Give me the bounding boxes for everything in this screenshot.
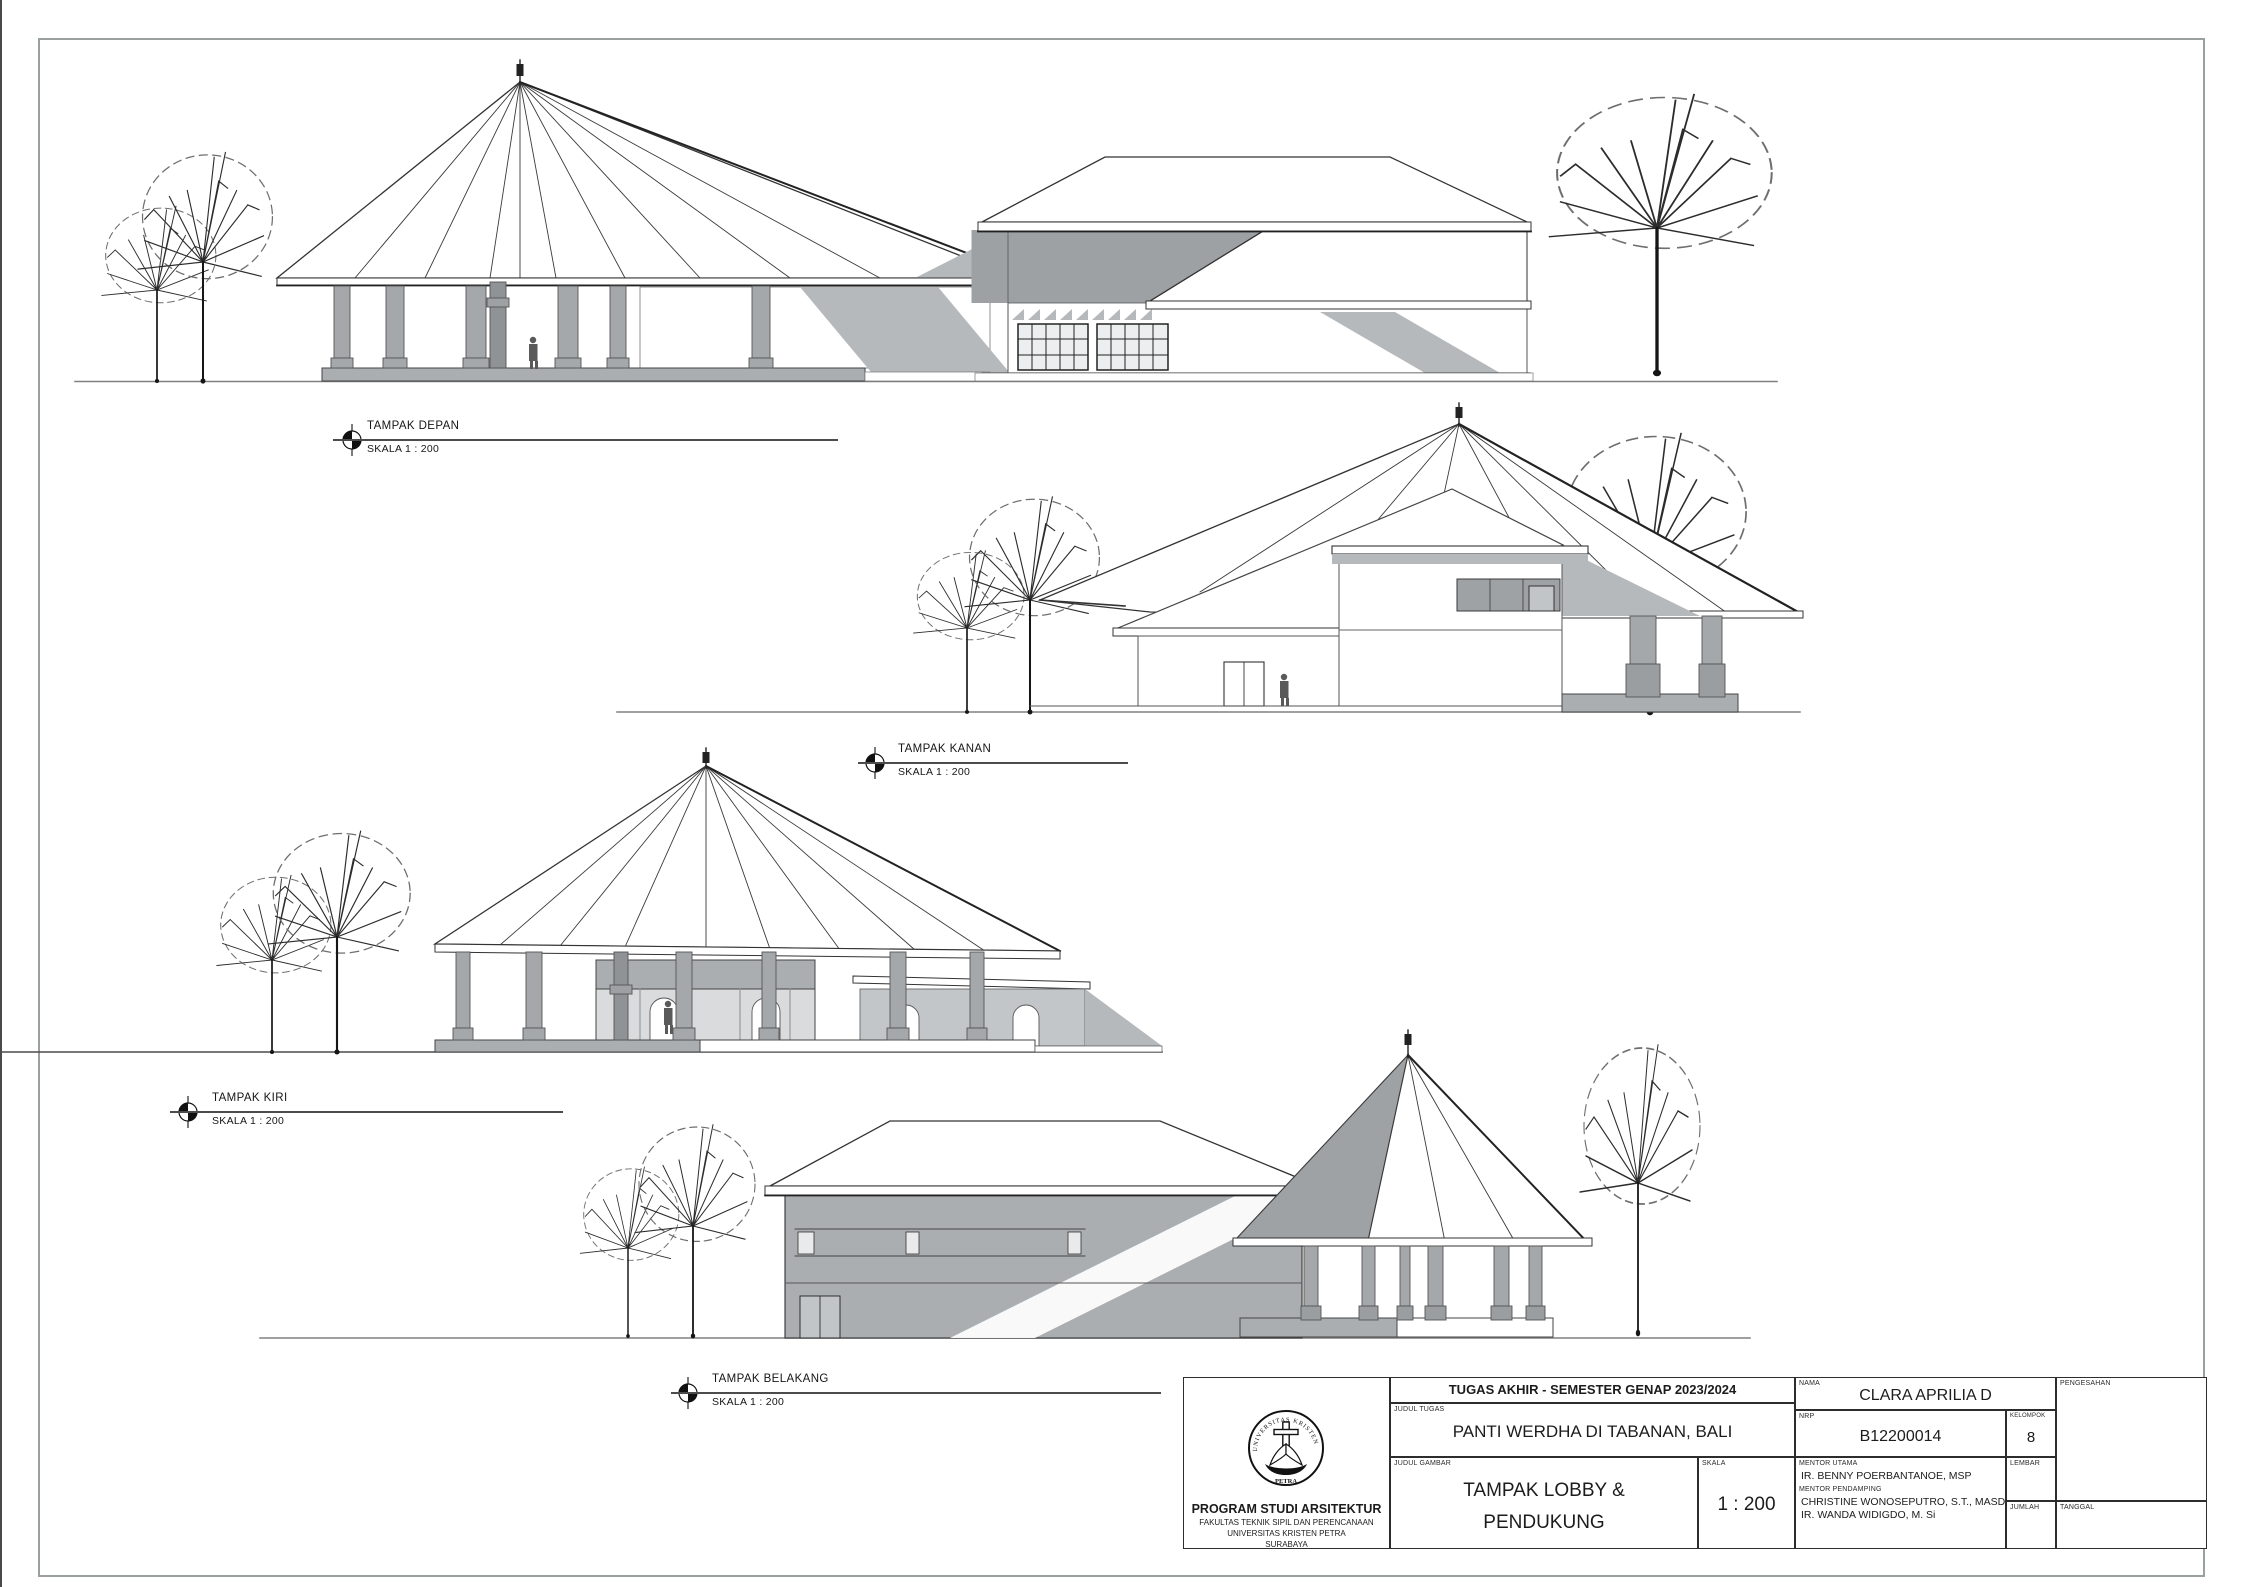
jumlah-label: JUMLAH — [2010, 1504, 2039, 1511]
skala-value: 1 : 200 — [1699, 1494, 1794, 1516]
judul-tugas-cell: JUDUL TUGAS PANTI WERDHA DI TABANAN, BAL… — [1390, 1403, 1795, 1457]
mentor-utama-label: MENTOR UTAMA — [1799, 1460, 1858, 1467]
title-block: UNIVERSITAS KRISTEN PETRA PROGRAM STUDI … — [1183, 1377, 2207, 1549]
elevation-kanan-drawing — [617, 403, 1803, 715]
logo-text-bottom: PETRA — [1275, 1478, 1297, 1485]
label-underline — [858, 762, 1128, 764]
pengesahan-label: PENGESAHAN — [2060, 1380, 2111, 1387]
lobby-pavilion-front — [277, 60, 1017, 381]
elevation-depan-drawing — [75, 60, 1777, 384]
lembar-label: LEMBAR — [2010, 1460, 2040, 1467]
nama-value: CLARA APRILIA D — [1796, 1387, 2055, 1405]
institution-city: SURABAYA — [1184, 1539, 1389, 1551]
architectural-sheet: { "page": { "type": "architectural eleva… — [0, 0, 2245, 1587]
judul-tugas-value: PANTI WERDHA DI TABANAN, BALI — [1391, 1422, 1794, 1442]
support-building-back — [765, 1121, 1320, 1338]
nama-label: NAMA — [1799, 1380, 1820, 1387]
kelompok-value: 8 — [2007, 1429, 2055, 1446]
elevation-belakang-drawing — [260, 1030, 1750, 1338]
mentor-utama-value: IR. BENNY POERBANTANOE, MSP — [1801, 1470, 1972, 1482]
tree-icon — [217, 831, 410, 1054]
elevation-kiri-drawing — [0, 748, 1162, 1055]
label-underline — [333, 439, 838, 441]
institution-name: PROGRAM STUDI ARSITEKTUR — [1184, 1502, 1389, 1516]
elevation-title: TAMPAK DEPAN — [367, 420, 459, 432]
kelompok-cell: KELOMPOK 8 — [2006, 1410, 2056, 1457]
label-underline — [170, 1111, 563, 1113]
elevation-scale: SKALA 1 : 200 — [898, 766, 970, 778]
kelompok-label: KELOMPOK — [2010, 1413, 2045, 1419]
skala-cell: SKALA 1 : 200 — [1698, 1457, 1795, 1549]
institution-cell: UNIVERSITAS KRISTEN PETRA PROGRAM STUDI … — [1183, 1377, 1390, 1549]
elevation-scale: SKALA 1 : 200 — [367, 443, 439, 455]
project-header-cell: TUGAS AKHIR - SEMESTER GENAP 2023/2024 — [1390, 1377, 1795, 1403]
elevation-scale: SKALA 1 : 200 — [212, 1115, 284, 1127]
lembar-cell: LEMBAR — [2006, 1457, 2056, 1501]
person-silhouette-icon — [529, 337, 538, 369]
support-building-front — [975, 157, 1533, 381]
project-header: TUGAS AKHIR - SEMESTER GENAP 2023/2024 — [1391, 1382, 1794, 1397]
mentor-cell: MENTOR UTAMA IR. BENNY POERBANTANOE, MSP… — [1795, 1457, 2006, 1549]
institution-faculty: FAKULTAS TEKNIK SIPIL DAN PERENCANAAN — [1184, 1517, 1389, 1529]
judul-tugas-label: JUDUL TUGAS — [1394, 1406, 1444, 1413]
tanggal-cell: TANGGAL — [2056, 1501, 2207, 1549]
elevation-title: TAMPAK KANAN — [898, 743, 991, 755]
institution-university: UNIVERSITAS KRISTEN PETRA — [1184, 1528, 1389, 1540]
mentor-pendamping-1: CHRISTINE WONOSEPUTRO, S.T., MASD — [1801, 1496, 2005, 1508]
elevation-title: TAMPAK KIRI — [212, 1092, 288, 1104]
jumlah-cell: JUMLAH — [2006, 1501, 2056, 1549]
elevation-title: TAMPAK BELAKANG — [712, 1373, 829, 1385]
lobby-pavilion-left — [435, 748, 1162, 1052]
label-underline — [671, 1392, 1161, 1394]
colonnade — [1562, 616, 1738, 712]
mentor-pendamping-2: IR. WANDA WIDIGDO, M. Si — [1801, 1509, 1935, 1521]
columns — [1301, 1246, 1545, 1320]
pengesahan-cell: PENGESAHAN — [2056, 1377, 2207, 1501]
nama-cell: NAMA CLARA APRILIA D — [1795, 1377, 2056, 1410]
judul-gambar-line1: TAMPAK LOBBY & — [1391, 1476, 1697, 1505]
university-logo-icon: UNIVERSITAS KRISTEN PETRA — [1246, 1408, 1326, 1488]
nrp-value: B12200014 — [1796, 1428, 2005, 1446]
judul-gambar-line2: PENDUKUNG — [1391, 1508, 1697, 1537]
judul-gambar-cell: JUDUL GAMBAR TAMPAK LOBBY & PENDUKUNG — [1390, 1457, 1698, 1549]
nrp-label: NRP — [1799, 1413, 1814, 1420]
nrp-cell: NRP B12200014 — [1795, 1410, 2006, 1457]
elevation-drawings — [0, 0, 2245, 1587]
skala-label: SKALA — [1702, 1460, 1726, 1467]
mentor-pendamping-label: MENTOR PENDAMPING — [1799, 1486, 1882, 1493]
tanggal-label: TANGGAL — [2060, 1504, 2094, 1511]
elevation-scale: SKALA 1 : 200 — [712, 1396, 784, 1408]
judul-gambar-label: JUDUL GAMBAR — [1394, 1460, 1451, 1467]
